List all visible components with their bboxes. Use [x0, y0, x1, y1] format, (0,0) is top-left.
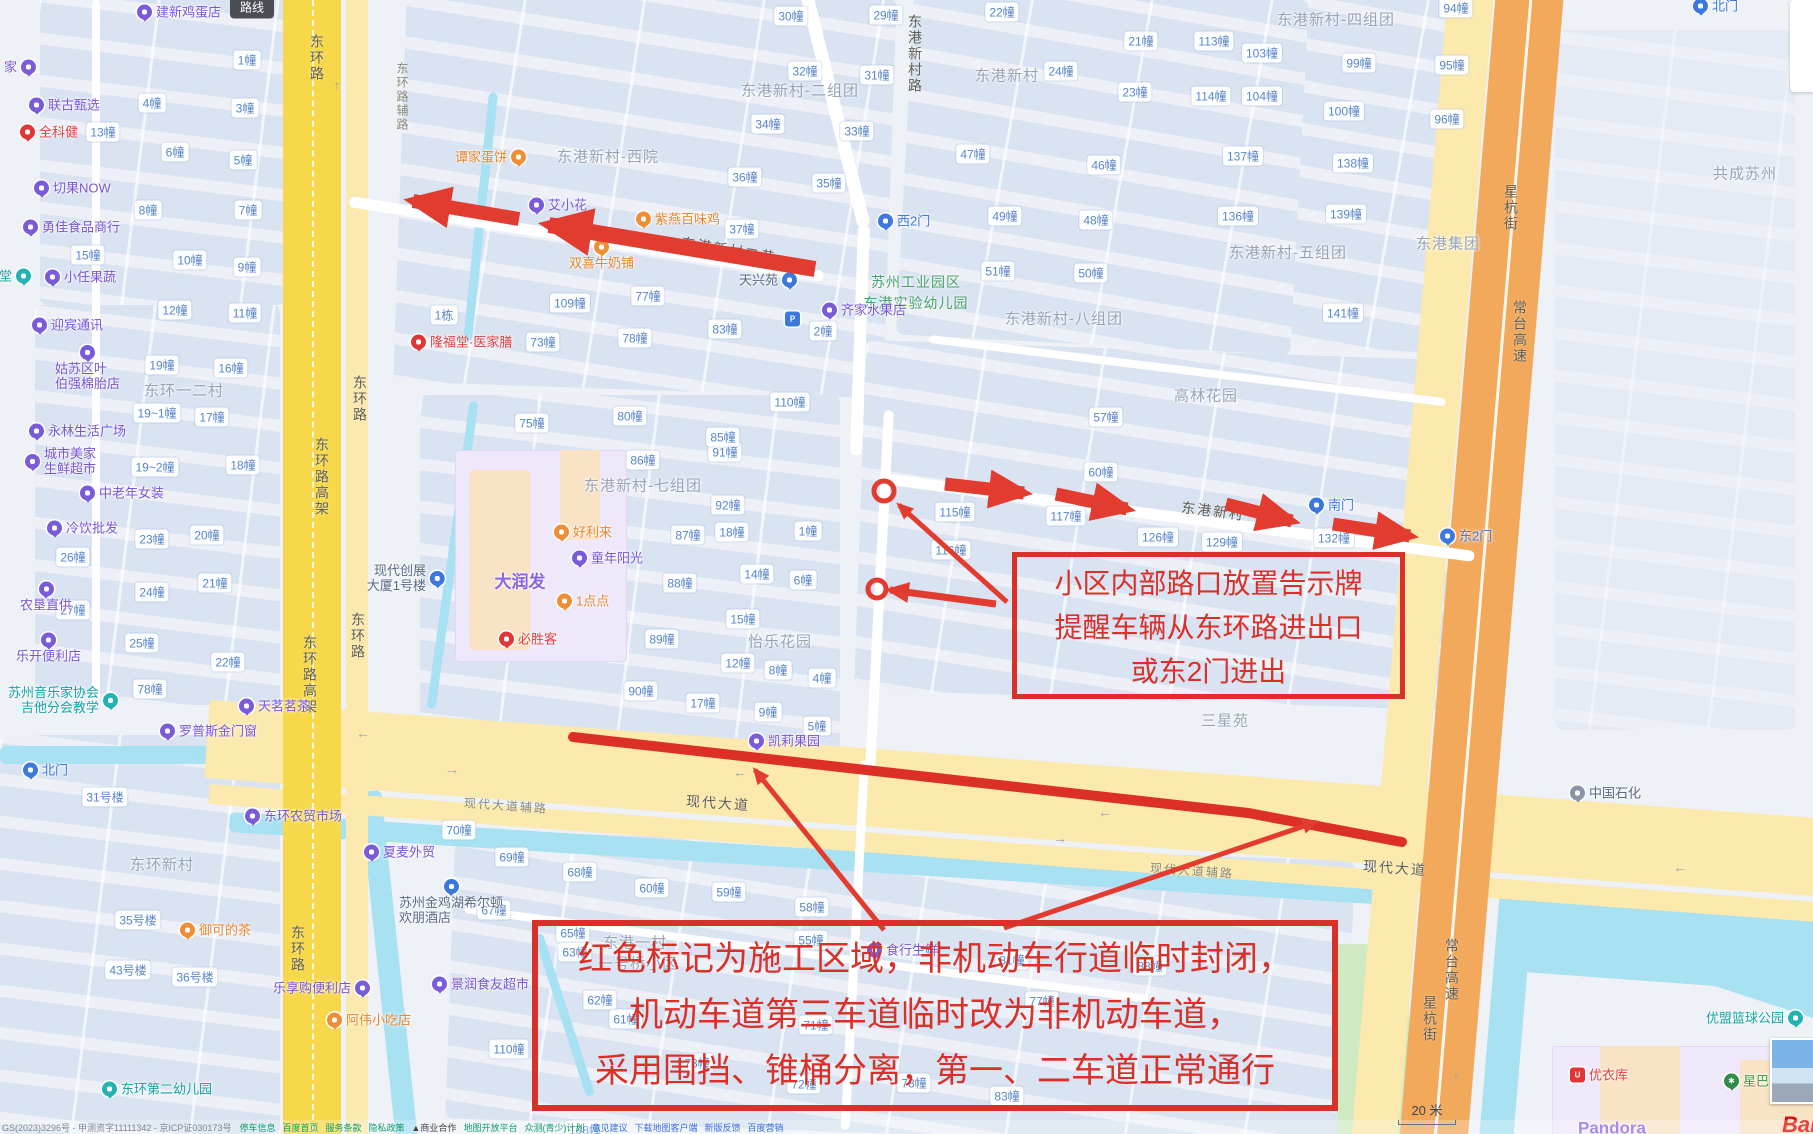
poi-label: 切果NOW	[53, 181, 111, 196]
poi-marker[interactable]: 童年阳光	[572, 551, 643, 566]
area-label: 东港集团	[1416, 233, 1480, 254]
双喜牛奶铺-icon	[594, 240, 609, 255]
building-label: 18幢	[226, 456, 259, 475]
building-label: 4幢	[809, 669, 836, 688]
poi-marker[interactable]: 永林生活广场	[29, 424, 126, 439]
building-label: 110幢	[770, 393, 809, 412]
poi-label: 全科健	[39, 125, 78, 140]
road-label: 东环路	[350, 375, 370, 423]
building-label: 77幢	[631, 287, 664, 306]
poi-marker[interactable]: 切果NOW	[34, 181, 111, 196]
building-label: 30幢	[774, 7, 807, 26]
building-label: 113幢	[1194, 32, 1233, 51]
poi-label: 现代创展大厦1号楼	[367, 563, 426, 593]
poi-marker[interactable]: 勇佳食品商行	[23, 220, 120, 235]
poi-marker[interactable]: 阿伟小吃店	[327, 1013, 411, 1028]
building-label: 35号楼	[115, 911, 160, 930]
building-label: 132幢	[1314, 529, 1354, 548]
poi-marker[interactable]: 北门	[1693, 0, 1738, 14]
poi-marker[interactable]: 双喜牛奶铺	[569, 240, 634, 271]
poi-label: 阿伟小吃店	[346, 1013, 411, 1028]
building-label: 6幢	[790, 571, 817, 590]
building-label: 6幢	[162, 143, 189, 162]
building-label: 1幢	[795, 522, 822, 541]
building-label: 57幢	[1089, 408, 1122, 427]
annotation-line: 小区内部路口放置告示牌	[1017, 562, 1400, 606]
building-label: 99幢	[1342, 54, 1375, 73]
姑苏区叶-icon	[80, 345, 95, 360]
footer-link[interactable]: 新版反馈	[704, 1123, 740, 1133]
poi-label: 联古甄选	[48, 98, 100, 113]
poi-label: 勇佳食品商行	[42, 220, 120, 235]
building-label: 60幢	[1084, 463, 1117, 482]
building-label: 19幢	[145, 356, 178, 375]
building-label: 87幢	[671, 526, 704, 545]
poi-marker[interactable]: 姑苏区叶伯强棉胎店	[55, 345, 120, 391]
poi-icon: P	[785, 312, 800, 327]
好利来-icon	[554, 525, 569, 540]
river	[1479, 890, 1534, 1134]
building-label: 12幢	[721, 654, 754, 673]
poi-label: 紫燕百味鸡	[655, 212, 720, 227]
road-label: 东环路高架	[312, 437, 332, 517]
poi-marker[interactable]: 夏麦外贸	[364, 845, 435, 860]
中国石化-icon	[1570, 786, 1585, 801]
poi-label: 南门	[1328, 498, 1354, 513]
footer-link[interactable]: 隐私政策	[369, 1123, 405, 1133]
poi-marker[interactable]: 艾小花	[529, 198, 587, 213]
annotation-line: 或东2门进出	[1017, 650, 1400, 694]
隆福堂·医家膳-icon	[411, 335, 426, 350]
building-label: 109幢	[550, 294, 590, 313]
乐开便利店-icon	[41, 633, 56, 648]
poi-label: 中老年女装	[99, 486, 164, 501]
mall-section	[470, 470, 530, 650]
building-label: 22幢	[985, 3, 1018, 22]
building-label: 73幢	[526, 333, 559, 352]
building-label: 32幢	[788, 62, 821, 81]
area-label: 苏州工业园区	[871, 272, 961, 292]
building-label: 36幢	[728, 168, 761, 187]
poi-marker[interactable]: 苏州金鸡湖希尔顿欢朋酒店	[399, 879, 503, 925]
poi-label: 优衣库	[1589, 1068, 1628, 1083]
building-label: 137幢	[1223, 147, 1263, 166]
poi-marker[interactable]: 南门	[1309, 498, 1354, 513]
poi-label: 艾小花	[548, 198, 587, 213]
building-label: 129幢	[1202, 533, 1242, 552]
baidu-map-canvas[interactable]: 小区内部路口放置告示牌 提醒车辆从东环路进出口 或东2门进出 红色标记为施工区域…	[0, 0, 1813, 1134]
building-label: 60幢	[635, 879, 668, 898]
东2门-icon	[1440, 529, 1455, 544]
building-label: 33幢	[840, 122, 873, 141]
阿伟小吃店-icon	[327, 1013, 342, 1028]
poi-marker[interactable]: 隆福堂·医家膳	[411, 335, 512, 350]
天兴苑-icon	[782, 273, 797, 288]
footer-link[interactable]: 百度营销	[748, 1123, 784, 1133]
building-label: 15幢	[71, 246, 104, 265]
poi-label: 苏州音乐家协会吉他分会教学	[8, 685, 99, 715]
traffic-direction-arrow: ←	[356, 725, 370, 741]
紫燕百味鸡-icon	[636, 212, 651, 227]
building-label: 139幢	[1326, 205, 1366, 224]
全科健-icon	[20, 125, 35, 140]
building-label: 5幢	[230, 151, 257, 170]
罗普斯金门窗-icon	[160, 724, 175, 739]
poi-marker[interactable]: 联古甄选	[29, 98, 100, 113]
side-panel[interactable]	[1790, 0, 1813, 92]
东环第二幼儿园-icon	[102, 1082, 117, 1097]
勇佳食品商行-icon	[23, 220, 38, 235]
poi-marker[interactable]: 冷饮批发	[47, 521, 118, 536]
poi-label: 东2门	[1459, 529, 1492, 544]
building-label: 21幢	[198, 574, 231, 593]
building-label: 1栋	[431, 306, 458, 325]
poi-marker[interactable]: 全科健	[20, 125, 78, 140]
北门-icon	[1693, 0, 1708, 14]
poi-label: 御可的茶	[199, 923, 251, 938]
poi-marker[interactable]: 城市美家生鲜超市	[25, 446, 96, 476]
footer-link[interactable]: 意见建议	[591, 1123, 627, 1133]
苏州金鸡湖希尔顿-icon	[444, 879, 459, 894]
poi-label: 大润发	[495, 575, 546, 590]
poi-label: 北门	[1712, 0, 1738, 14]
area-label: 东环新村	[130, 854, 194, 875]
area-label: 东港新村	[975, 65, 1039, 86]
poi-marker[interactable]: 中国石化	[1570, 786, 1641, 801]
poi-label: 1点点	[576, 594, 609, 609]
poi-label: 乐享购便利店	[273, 981, 351, 996]
poi-label: 永林生活广场	[48, 424, 126, 439]
building-label: 17幢	[686, 694, 719, 713]
poi-label: 东环农贸市场	[264, 809, 342, 824]
poi-label: 冷饮批发	[66, 521, 118, 536]
poi-marker[interactable]: 优盟篮球公园	[1706, 1011, 1803, 1026]
building-label: 17幢	[195, 408, 228, 427]
联古甄选-icon	[29, 98, 44, 113]
poi-label: 优盟篮球公园	[1706, 1011, 1784, 1026]
footer-bar: GS(2023)3296号 - 甲测资字11111342 - 京ICP证0301…	[0, 1120, 1813, 1134]
poi-marker[interactable]: 齐家水果店	[822, 303, 906, 318]
poi-label: 建新鸡蛋店	[156, 5, 221, 20]
footer-link[interactable]: 百度首页	[282, 1123, 318, 1133]
poi-marker[interactable]: 罗普斯金门窗	[160, 724, 257, 739]
area-label: 东港新村-四组团	[1277, 9, 1395, 30]
building-label: 19~1幢	[133, 404, 180, 423]
road-label: 东环路	[307, 34, 327, 82]
footer-link[interactable]: 地图开放平台	[463, 1123, 517, 1133]
艾小花-icon	[529, 198, 544, 213]
building-label: 34幢	[751, 115, 784, 134]
building-label: 80幢	[613, 407, 646, 426]
building-label: 13幢	[86, 123, 119, 142]
景润食友超市-icon	[432, 977, 447, 992]
building-label: 85幢	[706, 428, 739, 447]
road-label: 常台高速	[1442, 938, 1462, 1002]
building-label: 4幢	[139, 94, 166, 113]
building-label: 21幢	[1124, 32, 1157, 51]
building-label: 110幢	[489, 1040, 528, 1059]
building-label: 20幢	[190, 526, 223, 545]
annotation-line: 红色标记为施工区域，非机动车行道临时封闭，	[538, 931, 1332, 987]
谭家蛋饼-icon	[511, 150, 526, 165]
poi-label: 堂	[0, 269, 12, 284]
poi-marker[interactable]: 1点点	[557, 594, 609, 609]
traffic-direction-arrow: →	[1053, 830, 1067, 846]
poi-marker[interactable]: 御可的茶	[180, 923, 251, 938]
poi-label: 凯莉果园	[768, 734, 820, 749]
building-label: 11幢	[229, 304, 261, 323]
lane-divider	[312, 0, 314, 1134]
building-label: 78幢	[133, 680, 166, 699]
building-label: 9幢	[755, 703, 782, 722]
poi-label: 家	[4, 60, 17, 75]
building-label: 103幢	[1242, 44, 1282, 63]
poi-marker[interactable]: 堂	[0, 269, 31, 284]
poi-marker[interactable]: 家	[4, 60, 36, 75]
乐享购便利店-icon	[355, 981, 370, 996]
building-label: 14幢	[740, 565, 773, 584]
footer-link[interactable]: 服务条款	[325, 1123, 361, 1133]
building-label: 31幢	[860, 66, 893, 85]
annotation-line: 机动车道第三车道临时改为非机动车道，	[538, 987, 1332, 1043]
building-label: 138幢	[1333, 154, 1373, 173]
poi-marker[interactable]: 东环农贸市场	[245, 809, 342, 824]
优衣库-icon: U	[1570, 1068, 1585, 1083]
building-label: 126幢	[1138, 528, 1178, 547]
building-label: 9幢	[234, 258, 261, 277]
footer-link[interactable]: 下载地图客户端	[634, 1123, 697, 1133]
building-label: 136幢	[1218, 207, 1258, 226]
poi-marker[interactable]: U优衣库	[1570, 1068, 1628, 1083]
area-label: 东港新村-二组团	[741, 80, 859, 101]
东环农贸市场-icon	[245, 809, 260, 824]
building-label: 26幢	[56, 548, 89, 567]
poi-marker[interactable]: 小任果蔬	[45, 270, 116, 285]
农垦直供-icon	[39, 582, 54, 597]
building-label: 24幢	[1044, 62, 1077, 81]
小任果蔬-icon	[45, 270, 60, 285]
building-label: 31号楼	[82, 788, 127, 807]
迎宾通讯-icon	[32, 318, 47, 333]
切果NOW-icon	[34, 181, 49, 196]
building-label: 15幢	[726, 610, 759, 629]
building-label: 48幢	[1079, 211, 1112, 230]
poi-label: 中国石化	[1589, 786, 1641, 801]
road-label: 东环路	[288, 925, 308, 973]
annotation-line: 采用围挡、锥桶分离，第一、二车道正常通行	[538, 1043, 1332, 1099]
poi-marker[interactable]: 天茗茗茶	[239, 699, 310, 714]
poi-marker[interactable]: 乐开便利店	[16, 633, 81, 664]
1点点-icon	[557, 594, 572, 609]
poi-marker[interactable]: 天兴苑	[739, 273, 797, 288]
poi-label: 迎宾通讯	[51, 318, 103, 333]
city-block	[1555, 30, 1795, 730]
poi-label: 城市美家生鲜超市	[44, 446, 96, 476]
building-label: 116幢	[931, 541, 970, 560]
building-label: 43号楼	[105, 961, 150, 980]
poi-marker[interactable]: 西2门	[878, 214, 930, 229]
building-label: 50幢	[1074, 264, 1107, 283]
poi-marker[interactable]: 乐享购便利店	[273, 981, 370, 996]
traffic-direction-arrow: →	[445, 761, 459, 777]
building-label: 24幢	[135, 583, 168, 602]
area-label: 高林花园	[1174, 385, 1238, 406]
building-label: 18幢	[715, 523, 748, 542]
building-label: 8幢	[135, 201, 162, 220]
poi-label: 谭家蛋饼	[455, 150, 507, 165]
poi-label: 好利来	[573, 525, 612, 540]
西2门-icon	[878, 214, 893, 229]
poi-label: 天兴苑	[739, 273, 778, 288]
area-label: 东港新村-西院	[557, 146, 659, 167]
footer-link[interactable]: ▲商业合作	[412, 1123, 457, 1133]
building-label: 47幢	[956, 145, 989, 164]
building-label: 69幢	[495, 848, 528, 867]
poi-label: 天茗茗茶	[258, 699, 310, 714]
footer-link[interactable]: 众测(青少)计划	[524, 1123, 584, 1133]
building-label: 25幢	[125, 634, 158, 653]
building-label: 89幢	[645, 630, 678, 649]
poi-marker[interactable]: 苏州音乐家协会吉他分会教学	[8, 685, 118, 715]
星巴克-icon: ✱	[1724, 1074, 1739, 1089]
poi-label: 齐家水果店	[841, 303, 906, 318]
城市美家-icon	[25, 454, 40, 469]
building-label: 75幢	[515, 414, 548, 433]
building-label: 88幢	[663, 574, 696, 593]
building-label: 35幢	[812, 174, 845, 193]
poi-marker[interactable]: 紫燕百味鸡	[636, 212, 720, 227]
南门-icon	[1309, 498, 1324, 513]
building-label: 104幢	[1242, 87, 1282, 106]
现代创展-icon	[430, 571, 445, 586]
poi-marker[interactable]: 东2门	[1440, 529, 1492, 544]
童年阳光-icon	[572, 551, 587, 566]
优盟篮球公园-icon	[1788, 1011, 1803, 1026]
building-label: 23幢	[135, 530, 168, 549]
poi-label: 隆福堂·医家膳	[430, 335, 512, 350]
scale-text: 20 米	[1411, 1103, 1442, 1118]
area-label: 共成苏州	[1713, 163, 1777, 184]
building-label: 95幢	[1435, 56, 1468, 75]
area-label: 东港新村-五组团	[1229, 242, 1347, 263]
street-view-thumbnail[interactable]	[1770, 1038, 1813, 1104]
poi-marker[interactable]: 农垦直供	[20, 582, 72, 613]
poi-marker[interactable]: 现代创展大厦1号楼	[367, 563, 445, 593]
poi-marker[interactable]: 北门	[23, 763, 68, 778]
road-label: 星杭街	[1501, 184, 1521, 232]
building-label: 100幢	[1324, 102, 1364, 121]
堂-icon	[16, 269, 31, 284]
冷饮批发-icon	[47, 521, 62, 536]
building-label: 29幢	[869, 6, 902, 25]
building-label: 92幢	[711, 496, 744, 515]
苏州音乐家协会-icon	[103, 693, 118, 708]
road-label: 东港新村路	[905, 14, 925, 94]
road-label: 东环路辅路	[394, 62, 411, 132]
road-label: 东环路	[348, 612, 368, 660]
building-label: 83幢	[708, 320, 741, 339]
building-label: 22幢	[211, 653, 244, 672]
poi-label: 东环第二幼儿园	[121, 1082, 212, 1097]
road-label: 常台高速	[1510, 300, 1530, 364]
traffic-direction-arrow: ↑	[334, 77, 341, 93]
poi-marker[interactable]: 凯莉果园	[749, 734, 820, 749]
凯莉果园-icon	[749, 734, 764, 749]
building-label: 7幢	[235, 201, 262, 220]
building-label: 8幢	[765, 661, 792, 680]
building-label: 37幢	[725, 220, 758, 239]
poi-label: 西2门	[897, 214, 930, 229]
poi-marker[interactable]: 好利来	[554, 525, 612, 540]
齐家水果店-icon	[822, 303, 837, 318]
poi-marker[interactable]: 东环第二幼儿园	[102, 1082, 212, 1097]
poi-marker[interactable]: 景润食友超市	[432, 977, 529, 992]
route-button[interactable]: 路线	[230, 0, 274, 19]
annotation-line: 提醒车辆从东环路进出口	[1017, 606, 1400, 650]
building-label: 117幢	[1046, 507, 1085, 526]
building-label: 16幢	[214, 359, 247, 378]
building-label: 59幢	[712, 883, 745, 902]
夏麦外贸-icon	[364, 845, 379, 860]
poi-marker[interactable]: 迎宾通讯	[32, 318, 103, 333]
area-label: 三星苑	[1201, 710, 1249, 731]
building-label: 94幢	[1439, 0, 1472, 18]
footer-link[interactable]: 停车信息	[239, 1123, 275, 1133]
traffic-direction-arrow: ←	[733, 764, 747, 780]
building-label: 36号楼	[172, 968, 217, 987]
poi-label: 小任果蔬	[64, 270, 116, 285]
area-label: 东港新村-七组团	[584, 475, 702, 496]
必胜客-icon	[499, 632, 514, 647]
building-label: 12幢	[158, 301, 191, 320]
traffic-direction-arrow: ↑	[1453, 1069, 1460, 1085]
building-label: 141幢	[1323, 304, 1363, 323]
永林生活广场-icon	[29, 424, 44, 439]
poi-label: 景润食友超市	[451, 977, 529, 992]
中老年女装-icon	[80, 486, 95, 501]
building-label: 51幢	[981, 262, 1014, 281]
building-label: 70幢	[442, 821, 475, 840]
traffic-direction-arrow: ←	[1673, 859, 1687, 875]
building-label: 23幢	[1118, 83, 1151, 102]
building-label: 68幢	[563, 863, 596, 882]
construction-annotation-box: 红色标记为施工区域，非机动车行道临时封闭， 机动车道第三车道临时改为非机动车道，…	[532, 920, 1338, 1111]
poi-label: 童年阳光	[591, 551, 643, 566]
家-icon	[21, 60, 36, 75]
北门-icon	[23, 763, 38, 778]
poi-marker[interactable]: 中老年女装	[80, 486, 164, 501]
poi-marker[interactable]: 谭家蛋饼	[455, 150, 526, 165]
area-label: 东港新村-八组团	[1005, 308, 1123, 329]
building-label: 78幢	[618, 329, 651, 348]
footer-links: 停车信息百度首页服务条款隐私政策▲商业合作地图开放平台众测(青少)计划意见建议下…	[239, 1121, 790, 1134]
poi-label: 夏麦外贸	[383, 845, 435, 860]
poi-marker[interactable]: 建新鸡蛋店	[137, 5, 221, 20]
building-label: 86幢	[626, 451, 659, 470]
building-label: 96幢	[1430, 110, 1463, 129]
road-label: 星杭街	[1420, 995, 1440, 1043]
poi-marker[interactable]: 大润发	[495, 575, 546, 590]
building-label: 10幢	[173, 251, 206, 270]
building-label: 1幢	[234, 51, 261, 70]
building-label: 90幢	[624, 682, 657, 701]
notice-annotation-box: 小区内部路口放置告示牌 提醒车辆从东环路进出口 或东2门进出	[1012, 552, 1405, 699]
poi-marker[interactable]: P	[785, 312, 800, 327]
building-label: 58幢	[795, 898, 828, 917]
poi-marker[interactable]: 必胜客	[499, 632, 557, 647]
poi-label: 罗普斯金门窗	[179, 724, 257, 739]
donghuan-road	[346, 0, 368, 1134]
